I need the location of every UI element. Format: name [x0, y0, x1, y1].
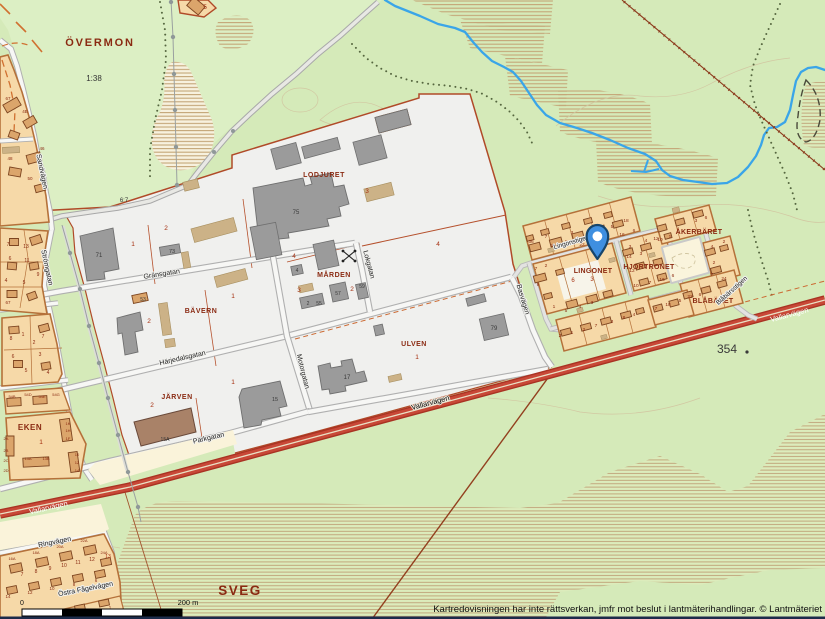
svg-text:2: 2	[723, 239, 726, 245]
svg-text:50: 50	[27, 176, 33, 181]
svg-text:15: 15	[272, 397, 278, 403]
svg-text:10: 10	[61, 563, 67, 569]
svg-text:4: 4	[711, 244, 714, 250]
svg-text:54B: 54B	[8, 394, 15, 399]
svg-text:6: 6	[705, 215, 708, 221]
svg-text:1: 1	[553, 304, 556, 310]
svg-text:HJORTRONET: HJORTRONET	[623, 264, 675, 271]
svg-text:59: 59	[359, 284, 365, 290]
svg-text:1: 1	[415, 354, 419, 361]
svg-text:4: 4	[436, 241, 440, 248]
svg-text:12: 12	[75, 460, 80, 465]
svg-text:17: 17	[344, 375, 351, 381]
svg-text:24: 24	[721, 276, 727, 282]
svg-text:10: 10	[49, 586, 55, 591]
svg-text:4B: 4B	[22, 109, 28, 114]
svg-text:5: 5	[203, 4, 207, 11]
svg-text:11: 11	[24, 258, 29, 264]
svg-text:1H: 1H	[65, 428, 70, 433]
svg-text:13: 13	[23, 244, 29, 250]
svg-text:7: 7	[21, 572, 24, 578]
svg-text:12: 12	[27, 590, 33, 595]
svg-text:ÅKERBÄRET: ÅKERBÄRET	[676, 227, 723, 236]
svg-text:7: 7	[7, 242, 10, 248]
svg-text:5: 5	[565, 308, 568, 314]
svg-text:LODJURET: LODJURET	[303, 172, 345, 179]
svg-text:4: 4	[645, 238, 648, 244]
svg-text:Kartredovisningen har inte rät: Kartredovisningen har inte rättsverkan, …	[433, 604, 822, 615]
svg-text:8: 8	[35, 569, 38, 575]
svg-text:5: 5	[611, 224, 614, 230]
svg-text:1: 1	[39, 439, 43, 446]
svg-text:4: 4	[579, 304, 582, 310]
svg-text:13B: 13B	[42, 456, 49, 461]
svg-text:18: 18	[623, 218, 629, 224]
svg-text:6: 6	[12, 354, 15, 360]
svg-text:4: 4	[296, 268, 299, 274]
svg-text:13A: 13A	[24, 456, 31, 461]
svg-text:5: 5	[25, 368, 28, 374]
svg-text:ULVEN: ULVEN	[401, 341, 427, 348]
svg-text:3: 3	[571, 230, 574, 236]
svg-text:1K: 1K	[66, 421, 71, 426]
svg-text:6:7: 6:7	[120, 198, 129, 204]
svg-text:54E: 54E	[38, 394, 45, 399]
svg-text:1F: 1F	[66, 436, 71, 441]
svg-text:2: 2	[307, 301, 310, 307]
svg-text:1: 1	[131, 241, 135, 248]
svg-text:0: 0	[20, 600, 24, 607]
svg-text:7: 7	[42, 334, 45, 340]
svg-text:2: 2	[350, 286, 354, 293]
svg-text:73: 73	[169, 249, 175, 255]
svg-text:1: 1	[22, 332, 25, 338]
svg-text:6: 6	[672, 273, 675, 279]
svg-text:354: 354	[717, 342, 737, 356]
svg-text:4: 4	[292, 253, 296, 260]
svg-text:1: 1	[231, 293, 235, 300]
svg-text:1: 1	[669, 234, 672, 240]
svg-text:16: 16	[619, 232, 625, 238]
svg-text:2C: 2C	[3, 458, 8, 463]
svg-text:7: 7	[711, 272, 714, 278]
svg-text:67: 67	[5, 300, 11, 305]
svg-text:2A: 2A	[4, 436, 9, 441]
svg-text:13: 13	[105, 554, 111, 560]
svg-text:48: 48	[7, 156, 13, 161]
svg-text:22A: 22A	[80, 538, 87, 543]
svg-text:5: 5	[23, 280, 26, 286]
svg-text:7: 7	[545, 234, 548, 240]
svg-text:46: 46	[39, 146, 45, 151]
svg-text:3: 3	[611, 319, 614, 325]
svg-text:2: 2	[147, 318, 151, 325]
svg-text:2: 2	[583, 327, 586, 333]
svg-text:3: 3	[365, 188, 369, 195]
svg-text:7: 7	[655, 306, 658, 312]
svg-text:14: 14	[626, 254, 632, 260]
svg-text:9: 9	[37, 272, 40, 278]
svg-text:55: 55	[316, 301, 322, 307]
svg-text:3: 3	[591, 300, 594, 306]
svg-text:79: 79	[491, 326, 498, 332]
svg-text:200 m: 200 m	[178, 598, 199, 607]
svg-text:6: 6	[633, 228, 636, 234]
svg-text:7: 7	[649, 280, 652, 286]
svg-text:4: 4	[633, 312, 636, 318]
svg-text:18A: 18A	[32, 550, 39, 555]
svg-text:71: 71	[96, 253, 103, 259]
svg-text:JÄRVEN: JÄRVEN	[161, 393, 192, 401]
svg-text:2: 2	[713, 260, 716, 266]
svg-text:57: 57	[335, 291, 341, 297]
svg-text:2: 2	[545, 263, 548, 269]
svg-text:1:38: 1:38	[86, 74, 102, 83]
svg-text:2D: 2D	[3, 468, 8, 473]
svg-text:7: 7	[535, 266, 538, 272]
svg-text:2: 2	[33, 340, 36, 346]
svg-text:ÖVERMON: ÖVERMON	[65, 36, 134, 49]
svg-text:67: 67	[5, 96, 11, 101]
svg-text:2: 2	[559, 333, 562, 339]
svg-text:10: 10	[657, 237, 663, 243]
svg-text:8: 8	[623, 315, 626, 321]
svg-text:10: 10	[633, 283, 639, 289]
svg-text:14: 14	[75, 468, 80, 473]
svg-text:75: 75	[293, 210, 300, 216]
svg-text:8: 8	[10, 336, 13, 342]
svg-text:4: 4	[47, 370, 50, 376]
svg-text:3: 3	[695, 218, 698, 224]
svg-text:7: 7	[595, 323, 598, 329]
svg-text:16: 16	[659, 277, 665, 283]
svg-text:MÅRDEN: MÅRDEN	[317, 270, 351, 279]
svg-text:2: 2	[164, 225, 168, 232]
svg-text:54G: 54G	[52, 392, 60, 397]
svg-text:3: 3	[629, 244, 632, 250]
svg-text:16A: 16A	[8, 556, 15, 561]
svg-text:3: 3	[640, 251, 643, 257]
svg-text:15A: 15A	[161, 437, 171, 443]
svg-text:BÄVERN: BÄVERN	[185, 307, 218, 315]
svg-text:6: 6	[9, 256, 12, 262]
svg-text:SVEG: SVEG	[218, 583, 262, 598]
svg-text:18: 18	[665, 302, 671, 308]
svg-text:LINGONET: LINGONET	[574, 268, 613, 275]
svg-text:5: 5	[679, 298, 682, 304]
svg-text:2: 2	[150, 402, 154, 409]
svg-text:12: 12	[89, 557, 95, 563]
svg-text:4: 4	[5, 278, 8, 284]
svg-text:3: 3	[39, 352, 42, 358]
svg-text:1: 1	[231, 379, 235, 386]
svg-text:EKEN: EKEN	[18, 423, 42, 432]
svg-text:36: 36	[528, 239, 534, 245]
svg-text:54D: 54D	[24, 392, 31, 397]
svg-text:10: 10	[75, 452, 80, 457]
svg-text:1: 1	[571, 330, 574, 336]
svg-text:9: 9	[49, 566, 52, 572]
svg-text:3: 3	[297, 287, 301, 294]
svg-text:53: 53	[140, 297, 146, 303]
svg-text:9: 9	[537, 282, 540, 288]
svg-text:2B: 2B	[4, 448, 9, 453]
svg-text:11: 11	[75, 560, 80, 566]
svg-text:14: 14	[5, 594, 11, 599]
